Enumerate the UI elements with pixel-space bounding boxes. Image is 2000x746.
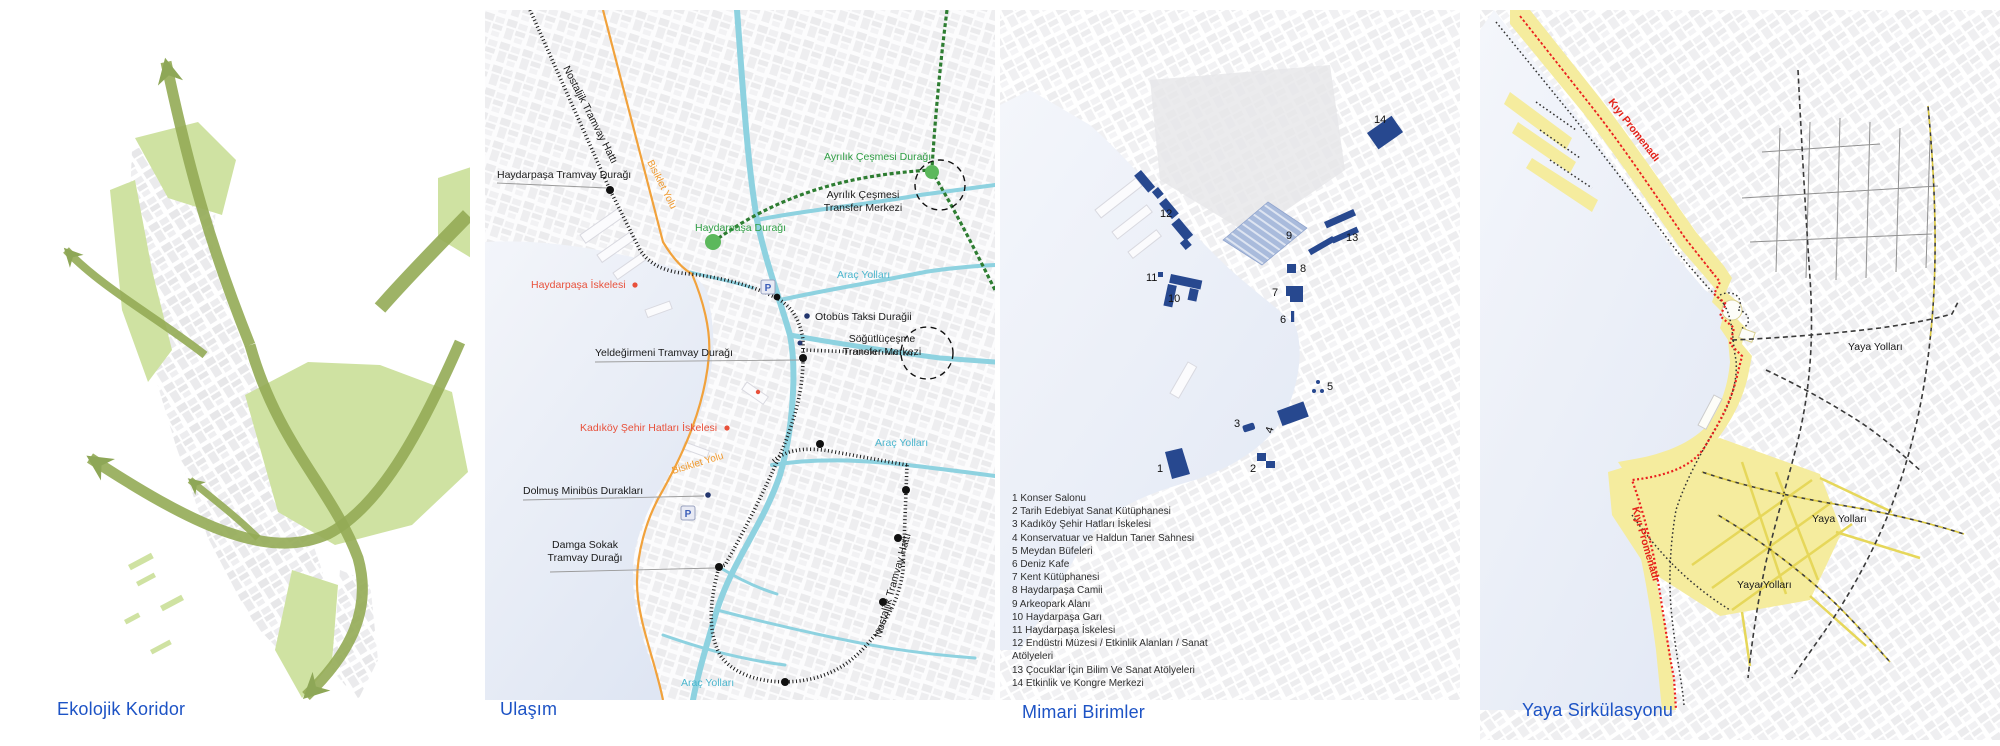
title-yaya-sirkulasyonu: Yaya Sirkülasyonu [1522,700,1673,721]
number-13: 13 [1346,232,1358,244]
legend-item: 8 Haydarpaşa Camii [1012,584,1212,597]
parking-icon: P [761,280,775,294]
number-6: 6 [1280,314,1286,326]
legend-item: 11 Haydarpaşa İskelesi [1012,624,1212,637]
number-9: 9 [1286,230,1292,242]
svg-text:P: P [765,283,772,294]
damga-stop-label-1: Damga Sokak [552,539,619,551]
number-8: 8 [1300,263,1306,275]
sogutlucesme-label-1: Söğütlüçeşme [849,333,916,345]
legend-item: 10 Haydarpaşa Garı [1012,611,1212,624]
legend-item: 4 Konservatuar ve Haldun Taner Sahnesi [1012,532,1212,545]
title-ekolojik-koridor: Ekolojik Koridor [57,699,185,720]
ekolojik-koridor-map [40,10,470,700]
yaya-yollari-label-1: Yaya Yolları [1848,341,1903,353]
legend-item: 7 Kent Kütüphanesi [1012,571,1212,584]
svg-text:P: P [685,509,692,520]
car-roads-label-1: Araç Yolları [837,269,890,281]
legend-item: 6 Deniz Kafe [1012,558,1212,571]
number-1: 1 [1157,463,1163,475]
damga-stop-label-2: Tramvay Durağı [548,552,623,564]
haydarpasa-station-label: Haydarpaşa Durağı [695,222,786,234]
title-ulasim: Ulaşım [500,699,557,720]
legend-item: 5 Meydan Büfeleri [1012,545,1212,558]
number-12: 12 [1160,208,1172,220]
haydarpasa-tram-stop-label: Haydarpaşa Tramvay Durağı [497,169,631,181]
number-11: 11 [1146,272,1157,284]
title-mimari-birimler: Mimari Birimler [1022,702,1145,723]
number-10: 10 [1168,293,1180,305]
legend-item: 9 Arkeopark Alanı [1012,598,1212,611]
kadikoy-ferry-label: Kadıköy Şehir Hatları İskelesi [580,421,717,434]
ayrilik-cesmesi-station-label: Ayrılık Çeşmesi Durağı [824,151,931,163]
legend-item: 1 Konser Salonu [1012,492,1212,505]
number-7: 7 [1272,287,1278,299]
number-2: 2 [1250,463,1256,475]
ayrilik-transfer-label-2: Transfer Merkezi [824,202,902,214]
number-3: 3 [1234,418,1240,430]
yaya-yollari-label-2: Yaya Yolları [1812,513,1867,525]
legend-item: 2 Tarih Edebiyat Sanat Kütüphanesi [1012,505,1212,518]
legend-item: 14 Etkinlik ve Kongre Merkezi [1012,677,1212,690]
yaya-yollari-label-3: Yaya Yolları [1737,579,1792,591]
number-14: 14 [1374,114,1386,126]
legend-item: 3 Kadıköy Şehir Hatları İskelesi [1012,518,1212,531]
car-roads-label-3: Araç Yolları [681,677,734,689]
parking-icon: P [681,506,695,520]
ayrilik-transfer-label-1: Ayrılık Çeşmesi [827,189,900,201]
sogutlucesme-label-2: Transfer Merkezi [843,346,921,358]
panel-yaya-sirkulasyonu: Kıyı Promenadı Kıyı Promenadı Yaya Yolla… [1480,10,2000,740]
bus-taxi-stop-label: Otobüs Taksi Durağii [815,311,912,323]
ulasim-map: P P Nostaljik Tramvay Hattı Nostaljik Tr… [485,10,995,700]
building-legend: 1 Konser Salonu 2 Tarih Edebiyat Sanat K… [1012,492,1212,690]
legend-item: 13 Çocuklar İçin Bilim Ve Sanat Atölyele… [1012,664,1212,677]
yaya-sirkulasyonu-map: Kıyı Promenadı Kıyı Promenadı Yaya Yolla… [1480,10,2000,740]
legend-item: 12 Endüstri Müzesi / Etkinlik Alanları /… [1012,637,1212,663]
panel-ekolojik-koridor [40,10,470,700]
panel-ulasim: P P Nostaljik Tramvay Hattı Nostaljik Tr… [485,10,995,700]
dolmus-stops-label: Dolmuş Minibüs Durakları [523,485,643,497]
haydarpasa-ferry-label: Haydarpaşa İskelesi [531,278,626,291]
number-5: 5 [1327,381,1333,393]
yeldegirmeni-stop-label: Yeldeğirmeni Tramvay Durağı [595,347,733,359]
car-roads-label-2: Araç Yolları [875,437,928,449]
